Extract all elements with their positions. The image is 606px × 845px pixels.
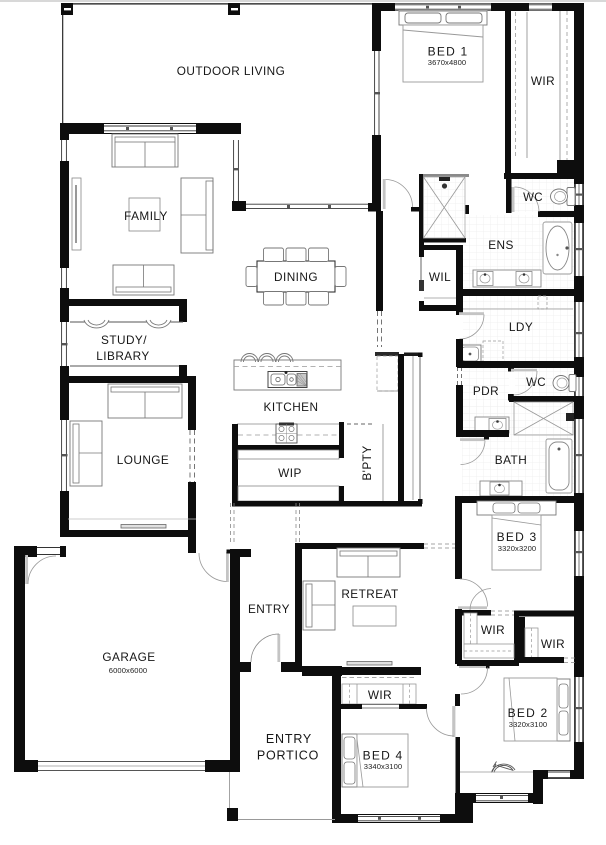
svg-text:3670x4800: 3670x4800 bbox=[428, 58, 466, 67]
svg-text:PDR: PDR bbox=[473, 384, 499, 398]
svg-text:OUTDOOR LIVING: OUTDOOR LIVING bbox=[177, 64, 286, 78]
svg-text:ENTRY: ENTRY bbox=[248, 602, 290, 616]
svg-text:LIBRARY: LIBRARY bbox=[96, 349, 149, 363]
svg-text:BED 2: BED 2 bbox=[508, 706, 549, 720]
svg-text:RETREAT: RETREAT bbox=[341, 587, 398, 601]
svg-text:FAMILY: FAMILY bbox=[124, 209, 168, 223]
svg-text:KITCHEN: KITCHEN bbox=[264, 400, 319, 414]
svg-text:WIR: WIR bbox=[481, 623, 505, 637]
svg-text:WIR: WIR bbox=[368, 688, 392, 702]
svg-text:LDY: LDY bbox=[509, 320, 533, 334]
svg-text:WIL: WIL bbox=[429, 270, 451, 284]
svg-text:WIR: WIR bbox=[531, 74, 555, 88]
svg-text:WIP: WIP bbox=[278, 466, 302, 480]
svg-text:DINING: DINING bbox=[274, 270, 318, 284]
svg-text:GARAGE: GARAGE bbox=[102, 650, 155, 664]
svg-text:B'PTY: B'PTY bbox=[360, 445, 374, 480]
svg-text:LOUNGE: LOUNGE bbox=[117, 453, 170, 467]
svg-text:3320x3100: 3320x3100 bbox=[509, 720, 547, 729]
svg-text:ENTRY: ENTRY bbox=[266, 732, 312, 746]
svg-text:BATH: BATH bbox=[495, 453, 527, 467]
svg-text:BED 1: BED 1 bbox=[428, 45, 469, 59]
svg-text:WC: WC bbox=[523, 192, 543, 204]
svg-text:6000x6000: 6000x6000 bbox=[109, 666, 147, 675]
svg-text:BED 4: BED 4 bbox=[363, 749, 404, 763]
svg-text:BED 3: BED 3 bbox=[497, 530, 538, 544]
svg-text:ENS: ENS bbox=[488, 238, 514, 252]
svg-text:PORTICO: PORTICO bbox=[257, 749, 319, 763]
svg-text:WIR: WIR bbox=[541, 637, 565, 651]
svg-text:3340x3100: 3340x3100 bbox=[364, 762, 402, 771]
svg-text:3320x3200: 3320x3200 bbox=[498, 544, 536, 553]
svg-text:STUDY/: STUDY/ bbox=[101, 333, 147, 347]
